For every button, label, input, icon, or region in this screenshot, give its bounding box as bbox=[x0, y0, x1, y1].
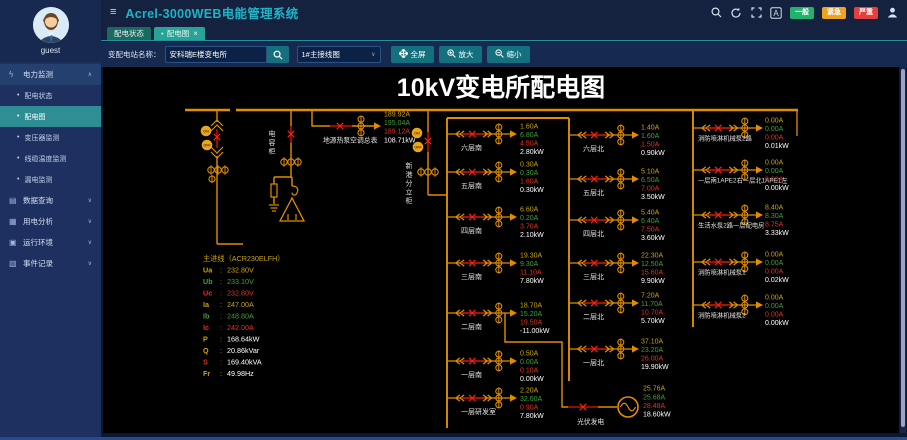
diagram-text: : bbox=[220, 369, 222, 378]
active-dot: ● bbox=[161, 31, 164, 36]
measurement-value: 6.50A bbox=[641, 177, 660, 184]
branch-north-1: 五层北5.10A6.50A7.00A3.50kW bbox=[569, 169, 665, 202]
branch-north-5: 一层北37.10A23.20A26.00A19.90kW bbox=[569, 339, 669, 372]
breaker-state-badge: ON bbox=[203, 130, 209, 134]
measurement-value: -11.00kW bbox=[520, 328, 550, 335]
branch-south-4: 二层南18.70A15.20A19.50A-11.00kW bbox=[447, 303, 550, 336]
measurement-label: S bbox=[203, 358, 208, 367]
branch-pumps-4: 消防喷淋机械泵20.00A0.00A0.00A0.00kW bbox=[693, 295, 789, 328]
measurement-value: 247.00A bbox=[227, 300, 254, 309]
branch-pumps-2: 生活水泵2路一层配电房8.40A8.30A8.75A3.33kW bbox=[693, 205, 789, 238]
capacitor-cabinet: 电容柜 bbox=[269, 110, 305, 221]
sidebar-menu: ϟ电力监测∧•配电状态•配电图•变压器监测•线缆温度监测•漏电监测▤数据查询∨▦… bbox=[0, 64, 101, 274]
measurement-value: 1.60A bbox=[641, 133, 660, 140]
measurement-value: 9.30A bbox=[520, 261, 539, 268]
measurement-value: 22.30A bbox=[641, 253, 664, 260]
measurement-value: 7.80kW bbox=[520, 278, 544, 285]
cabinet-label: 电 bbox=[269, 129, 276, 138]
measurement-value: 1.40A bbox=[641, 125, 660, 132]
button-label: 全屏 bbox=[411, 49, 426, 60]
measurement-value: 6.40A bbox=[641, 218, 660, 225]
cabinet-label: 港 bbox=[406, 170, 413, 179]
diagram-text: : bbox=[220, 335, 222, 344]
measurement-value: 5.70kW bbox=[641, 318, 665, 325]
refresh-icon[interactable] bbox=[730, 7, 742, 19]
measurement-value: 15.60A bbox=[641, 270, 664, 277]
measurement-value: 0.00A bbox=[765, 303, 784, 310]
sidebar-item-3[interactable]: •变压器监测 bbox=[0, 127, 101, 148]
measurement-value: 232.80V bbox=[227, 289, 254, 298]
measurement-label: Ia bbox=[203, 300, 210, 309]
measurement-label: Fr bbox=[203, 369, 210, 378]
measurement-value: 0.00A bbox=[765, 160, 784, 167]
measurement-value: 8.75A bbox=[765, 222, 784, 229]
menu-icon: ▤ bbox=[9, 196, 23, 205]
sidebar-item-8[interactable]: ▣运行环境∨ bbox=[0, 232, 101, 253]
button-label: 放大 bbox=[459, 49, 474, 60]
station-search-button[interactable] bbox=[267, 46, 289, 63]
branch-north-2: 四层北5.40A6.40A7.50A3.60kW bbox=[569, 210, 665, 243]
measurement-value: 20.86kVar bbox=[227, 346, 260, 355]
measurement-value: 25.76A bbox=[643, 386, 666, 393]
measurement-value: 11.10A bbox=[520, 270, 542, 277]
branch-north-0: 六层北1.40A1.60A1.50A0.90kW bbox=[569, 125, 665, 158]
tab-0[interactable]: 配电状态 bbox=[107, 27, 151, 40]
branch-label: 一层南 bbox=[461, 370, 482, 379]
diagram-text: : bbox=[220, 266, 222, 275]
toolbar-button-zoom-in[interactable]: 放大 bbox=[439, 46, 482, 63]
measurement-value: 0.00kW bbox=[520, 376, 544, 383]
chevron-icon: ∨ bbox=[88, 239, 92, 246]
measurement-value: 18.60kW bbox=[643, 412, 671, 419]
measurement-value: 0.00A bbox=[765, 312, 784, 319]
sidebar-item-9[interactable]: ▧事件记录∨ bbox=[0, 253, 101, 274]
app-title: Acrel-3000WEB电能管理系统 bbox=[125, 3, 298, 22]
bullet-icon: • bbox=[17, 92, 19, 99]
diagram-text: : bbox=[220, 346, 222, 355]
main-bus bbox=[185, 110, 798, 136]
measurement-value: 0.00A bbox=[765, 260, 784, 267]
measurement-value: 25.68A bbox=[643, 395, 666, 402]
measurement-value: 26.00A bbox=[641, 356, 664, 363]
bullet-icon: • bbox=[17, 134, 19, 141]
branch-label: 生活水泵2路一层配电房 bbox=[698, 221, 764, 230]
station-search-input[interactable] bbox=[165, 46, 267, 63]
cabinet-label: 容 bbox=[269, 138, 276, 147]
alarm-badge-0[interactable]: 一般 bbox=[790, 7, 814, 19]
measurement-value: 2.80kW bbox=[520, 149, 544, 156]
button-label: 缩小 bbox=[507, 49, 522, 60]
measurement-value: 5.10A bbox=[641, 169, 660, 176]
branch-label: 消防喷淋机械泵1 bbox=[698, 268, 746, 277]
branch-south-1: 五层南0.30A0.30A1.60A0.30kW bbox=[447, 162, 544, 195]
tab-label: 配电状态 bbox=[114, 28, 144, 39]
header-actions: A 一般紧急严重 bbox=[710, 7, 898, 19]
measurement-value: 0.00A bbox=[765, 126, 784, 133]
branch-pumps-1: 一层南1APE2右一层北1APE1左0.00A0.00A0.00A0.00kW bbox=[693, 160, 789, 193]
measurement-value: 0.90kW bbox=[641, 150, 665, 157]
measurement-value: 0.00A bbox=[765, 295, 784, 302]
menu-label: 线缆温度监测 bbox=[24, 154, 66, 164]
measurement-value: 32.60A bbox=[520, 396, 543, 403]
branch-label: 五层南 bbox=[461, 181, 482, 190]
measurement-value: 0.20A bbox=[520, 215, 539, 222]
fullscreen-icon[interactable] bbox=[750, 7, 762, 19]
measurement-value: 0.00A bbox=[765, 252, 784, 259]
branch-label: 五层北 bbox=[583, 189, 604, 197]
measurement-label: Uc bbox=[203, 289, 212, 298]
tab-label: 配电图 bbox=[167, 28, 190, 39]
measurement-value: 49.98Hz bbox=[227, 369, 254, 378]
measurement-value: 248.80A bbox=[227, 312, 254, 321]
branch-label: 地源热泵空调总表 bbox=[323, 136, 378, 145]
measurement-value: 3.60kW bbox=[641, 235, 665, 242]
heat-pump-meter-branch: 地源热泵空调总表189.92A195.04A189.12A108.71kW bbox=[312, 110, 416, 145]
branch-label: 一层北 bbox=[583, 359, 604, 367]
measurement-value: 3.50kW bbox=[641, 194, 665, 201]
diagram-text: : bbox=[220, 300, 222, 309]
menu-label: 事件记录 bbox=[23, 258, 53, 269]
bullet-icon: • bbox=[17, 155, 19, 162]
measurement-value: 10.70A bbox=[641, 310, 664, 317]
diagram-text: : bbox=[220, 358, 222, 367]
measurement-value: 0.01kW bbox=[765, 143, 789, 150]
branch-label: 六层北 bbox=[583, 144, 604, 153]
toolbar-button-expand[interactable]: 全屏 bbox=[391, 46, 434, 63]
app-header: ≡ Acrel-3000WEB电能管理系统 A 一般紧急严重 bbox=[101, 0, 907, 25]
branch-north-3: 三层北22.30A12.50A15.60A9.90kW bbox=[569, 253, 665, 286]
bullet-icon: • bbox=[17, 176, 19, 183]
branch-label: 三层北 bbox=[583, 273, 604, 281]
measurement-value: 168.64kW bbox=[227, 335, 260, 344]
measurement-value: 1.60A bbox=[520, 124, 539, 131]
main-incoming-feeder: ONOFF bbox=[201, 110, 243, 244]
measurement-value: 3.33kW bbox=[765, 230, 789, 237]
measurement-value: 19.30A bbox=[520, 253, 543, 260]
measurement-value: 189.92A bbox=[384, 112, 410, 119]
menu-label: 电力监测 bbox=[23, 69, 53, 80]
toolbar: 变配电站名称： 1#主接线图 ∨ 全屏放大缩小 bbox=[101, 42, 907, 67]
measurement-label: P bbox=[203, 335, 208, 344]
cabinet-label: 柜 bbox=[406, 196, 413, 205]
measurement-value: 0.30kW bbox=[520, 187, 544, 194]
username: guest bbox=[41, 46, 61, 55]
measurement-value: 189.12A bbox=[384, 129, 410, 136]
menu-toggle-icon[interactable]: ≡ bbox=[110, 7, 116, 18]
cabinet-label: 柜 bbox=[269, 147, 276, 156]
menu-icon: ▦ bbox=[9, 217, 23, 226]
menu-label: 配电状态 bbox=[24, 91, 52, 101]
measurement-value: 242.00A bbox=[227, 323, 254, 332]
branch-label: 二层南 bbox=[461, 322, 482, 331]
menu-label: 数据查询 bbox=[23, 195, 53, 206]
sidebar: guest ϟ电力监测∧•配电状态•配电图•变压器监测•线缆温度监测•漏电监测▤… bbox=[0, 0, 101, 440]
alarm-badge-1[interactable]: 紧急 bbox=[822, 7, 846, 19]
measurement-value: 233.10V bbox=[227, 277, 254, 286]
single-line-diagram: 10kV变电所配电图ONOFF电容柜地源热泵空调总表189.92A195.04A… bbox=[103, 67, 899, 433]
sidebar-item-6[interactable]: ▤数据查询∨ bbox=[0, 190, 101, 211]
measurement-value: 18.70A bbox=[520, 303, 543, 310]
chevron-down-icon: ∨ bbox=[371, 51, 375, 58]
diagram-title: 10kV变电所配电图 bbox=[397, 73, 605, 102]
toolbar-button-zoom-out[interactable]: 缩小 bbox=[487, 46, 530, 63]
diagram-select-value: 1#主接线图 bbox=[302, 49, 340, 60]
measurement-value: 2.10kW bbox=[520, 232, 544, 239]
branch-label: 四层北 bbox=[583, 230, 604, 238]
measurement-value: 1.60A bbox=[520, 179, 539, 186]
measurement-value: 232.80V bbox=[227, 266, 254, 275]
measurement-value: 0.30A bbox=[520, 170, 539, 177]
measurement-value: 3.70A bbox=[520, 224, 539, 231]
svg-text:A: A bbox=[773, 8, 779, 17]
branch-south-3: 三层南19.30A9.30A11.10A7.80kW bbox=[447, 253, 544, 286]
measurement-value: 19.90kW bbox=[641, 364, 669, 371]
tab-1[interactable]: ●配电图× bbox=[154, 27, 205, 40]
measurement-value: 37.10A bbox=[641, 339, 664, 346]
user-panel: guest bbox=[0, 0, 101, 62]
measurement-value: 2.20A bbox=[520, 388, 539, 395]
menu-label: 变压器监测 bbox=[24, 133, 59, 143]
measurement-value: 0.30A bbox=[520, 162, 539, 169]
breaker-state-badge: OFF bbox=[414, 146, 422, 150]
measurement-value: 108.71kW bbox=[384, 138, 416, 145]
measurement-value: 0.10A bbox=[520, 368, 539, 375]
search-icon[interactable] bbox=[710, 7, 722, 19]
avatar[interactable] bbox=[33, 7, 69, 43]
menu-label: 运行环境 bbox=[23, 237, 53, 248]
expand-icon bbox=[399, 49, 408, 60]
measurement-value: 0.00A bbox=[765, 118, 784, 125]
measurement-value: 0.00A bbox=[765, 269, 784, 276]
breaker-state-badge: OFF bbox=[203, 144, 211, 148]
sidebar-item-4[interactable]: •线缆温度监测 bbox=[0, 148, 101, 169]
sidebar-item-1[interactable]: •配电状态 bbox=[0, 85, 101, 106]
branch-label: 一层研发室 bbox=[461, 407, 496, 416]
sidebar-item-2[interactable]: •配电图 bbox=[0, 106, 101, 127]
cabinet-label: 分 bbox=[406, 179, 413, 188]
branch-label: 三层南 bbox=[461, 272, 482, 281]
measurement-label: Ic bbox=[203, 323, 209, 332]
measurement-value: 0.50A bbox=[520, 351, 539, 358]
zoom-in-icon bbox=[447, 49, 456, 60]
branch-label: 光伏发电 bbox=[577, 417, 604, 426]
distribution-diagram[interactable]: 10kV变电所配电图ONOFF电容柜地源热泵空调总表189.92A195.04A… bbox=[103, 67, 899, 433]
alarm-badges: 一般紧急严重 bbox=[790, 7, 878, 19]
measurement-value: 0.02kW bbox=[765, 277, 789, 284]
measurement-value: 23.20A bbox=[641, 347, 664, 354]
zoom-out-icon bbox=[495, 49, 504, 60]
diagram-select-dropdown[interactable]: 1#主接线图 ∨ bbox=[297, 46, 381, 63]
search-icon bbox=[273, 50, 283, 60]
branch-pumps-0: 消防喷淋机械泵2路0.00A0.00A0.00A0.01kW bbox=[693, 118, 789, 151]
tab-close-icon[interactable]: × bbox=[193, 29, 198, 38]
menu-label: 用电分析 bbox=[23, 216, 53, 227]
cabinet-label: 新 bbox=[406, 161, 413, 170]
measurement-value: 0.00kW bbox=[765, 320, 789, 327]
branch-south-2: 四层南6.60A0.20A3.70A2.10kW bbox=[447, 207, 544, 240]
station-name-label: 变配电站名称： bbox=[108, 49, 161, 60]
menu-icon: ▧ bbox=[9, 259, 23, 268]
sidebar-item-7[interactable]: ▦用电分析∨ bbox=[0, 211, 101, 232]
view-buttons: 全屏放大缩小 bbox=[391, 46, 535, 63]
measurement-value: 28.48A bbox=[643, 403, 666, 410]
measurement-title: 主进线（ACR230ELFH） bbox=[203, 254, 284, 263]
measurement-value: 169.40kVA bbox=[227, 358, 262, 367]
xingang-cabinet-feeder: ONOFF新港分立柜 bbox=[406, 110, 448, 205]
measurement-value: 15.20A bbox=[520, 311, 543, 318]
measurement-value: 12.50A bbox=[641, 261, 664, 268]
branch-south-5: 一层南0.50A0.00A0.10A0.00kW bbox=[447, 351, 544, 384]
diagram-text: : bbox=[220, 312, 222, 321]
branch-label: 消防喷淋机械泵2 bbox=[698, 311, 746, 320]
measurement-value: 8.40A bbox=[765, 205, 784, 212]
user-icon[interactable] bbox=[886, 7, 898, 19]
branch-north-4: 二层北7.20A11.70A10.70A5.70kW bbox=[569, 293, 665, 326]
tab-bar: 配电状态●配电图× bbox=[101, 25, 907, 41]
menu-icon: ϟ bbox=[9, 70, 23, 79]
branch-label: 二层北 bbox=[583, 313, 604, 321]
chevron-icon: ∨ bbox=[88, 197, 92, 204]
measurement-value: 195.04A bbox=[384, 120, 410, 127]
measurement-value: 7.80kW bbox=[520, 413, 544, 420]
font-size-icon[interactable]: A bbox=[770, 7, 782, 19]
avatar-person-icon bbox=[33, 7, 69, 43]
measurement-value: 7.50A bbox=[641, 227, 660, 234]
alarm-badge-2[interactable]: 严重 bbox=[854, 7, 878, 19]
chevron-icon: ∧ bbox=[88, 71, 92, 78]
sidebar-item-5[interactable]: •漏电监测 bbox=[0, 169, 101, 190]
branch-label: 四层南 bbox=[461, 226, 482, 235]
measurement-value: 0.00kW bbox=[765, 185, 789, 192]
branch-south-0: 六层南1.60A6.80A4.50A2.80kW bbox=[447, 124, 544, 157]
measurement-value: 1.50A bbox=[641, 142, 660, 149]
measurement-value: 5.40A bbox=[641, 210, 660, 217]
measurement-value: 9.90kW bbox=[641, 278, 665, 285]
app-window: guest ϟ电力监测∧•配电状态•配电图•变压器监测•线缆温度监测•漏电监测▤… bbox=[0, 0, 907, 440]
measurement-value: 0.00A bbox=[520, 359, 539, 366]
measurement-label: Q bbox=[203, 346, 209, 355]
branch-label: 消防喷淋机械泵2路 bbox=[698, 134, 753, 143]
chevron-icon: ∨ bbox=[88, 260, 92, 267]
scrollbar-thumb[interactable] bbox=[901, 69, 905, 427]
menu-label: 配电图 bbox=[24, 112, 45, 122]
bullet-icon: • bbox=[17, 113, 19, 120]
measurement-value: 0.00A bbox=[765, 177, 784, 184]
measurement-value: 6.80A bbox=[520, 132, 539, 139]
measurement-value: 7.00A bbox=[641, 186, 660, 193]
sidebar-item-0[interactable]: ϟ电力监测∧ bbox=[0, 64, 101, 85]
cabinet-label: 立 bbox=[406, 187, 413, 196]
measurement-value: 0.00A bbox=[765, 168, 784, 175]
measurement-label: Ua bbox=[203, 266, 213, 275]
vertical-scrollbar[interactable] bbox=[900, 67, 906, 433]
measurement-value: 0.00A bbox=[765, 135, 784, 142]
diagram-text: : bbox=[220, 277, 222, 286]
measurement-value: 19.50A bbox=[520, 320, 543, 327]
chevron-icon: ∨ bbox=[88, 218, 92, 225]
measurement-label: Ib bbox=[203, 312, 210, 321]
breaker-state-badge: ON bbox=[414, 132, 420, 136]
measurement-value: 4.50A bbox=[520, 141, 539, 148]
branch-pumps-3: 消防喷淋机械泵10.00A0.00A0.00A0.02kW bbox=[693, 252, 789, 285]
measurement-value: 0.90A bbox=[520, 405, 539, 412]
measurement-value: 7.20A bbox=[641, 293, 660, 300]
measurement-value: 6.60A bbox=[520, 207, 539, 214]
main-line-measurements: 主进线（ACR230ELFH）Ua:232.80VUb:233.10VUc:23… bbox=[203, 254, 284, 378]
diagram-title-text: 10kV变电所配电图 bbox=[397, 73, 605, 102]
measurement-label: Ub bbox=[203, 277, 213, 286]
diagram-text: : bbox=[220, 289, 222, 298]
menu-icon: ▣ bbox=[9, 238, 23, 247]
menu-label: 漏电监测 bbox=[24, 175, 52, 185]
branch-south-6: 一层研发室2.20A32.60A0.90A7.80kW bbox=[447, 388, 544, 421]
measurement-value: 11.70A bbox=[641, 301, 663, 308]
diagram-text: : bbox=[220, 323, 222, 332]
measurement-value: 8.30A bbox=[765, 213, 784, 220]
branch-label: 六层南 bbox=[461, 143, 482, 152]
